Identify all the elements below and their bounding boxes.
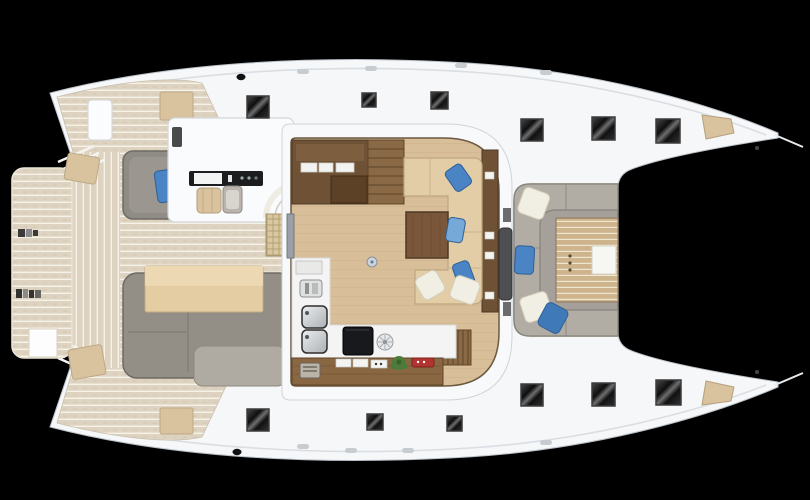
helm-stool-tan [197, 188, 221, 213]
aft-table-leaf [145, 266, 263, 286]
counter-dishes [336, 359, 387, 368]
salon-aft-door [287, 214, 294, 258]
countertop-appliances [301, 163, 354, 172]
galley-module [331, 176, 367, 203]
oven-icon [300, 280, 322, 297]
helm-display [194, 173, 222, 184]
hatch-top-6 [656, 119, 680, 143]
transom-steps-deck [73, 152, 120, 368]
salon [282, 124, 512, 400]
galley-sinks [302, 306, 327, 353]
forward-table-tray [592, 246, 616, 274]
aft-sofa-chaise-pad [194, 346, 286, 386]
hatch-bottom-4 [521, 384, 543, 406]
hatch-bottom-5 [592, 383, 615, 406]
yacht-deck-plan [0, 0, 810, 500]
hatch-top-3 [431, 92, 448, 109]
hatch-top-2 [362, 93, 376, 107]
bow-pulpit-lines [775, 135, 803, 385]
platform-locker-lid [29, 329, 57, 357]
hatch-bottom-3 [447, 416, 462, 431]
stairs-starboard [368, 140, 404, 204]
forward-door [499, 228, 512, 300]
hatch-top-4 [521, 119, 543, 141]
swim-platform [12, 168, 72, 358]
console-speaker-slot [172, 127, 182, 147]
deck-plan-svg [0, 0, 810, 500]
burner-vent [377, 334, 393, 350]
trampoline [620, 173, 776, 347]
helm-console [168, 118, 294, 222]
bow-fitting-top [755, 146, 759, 150]
hatch-bottom-1 [247, 409, 269, 431]
hatch-bottom-6 [656, 380, 681, 405]
galley-small-appliance [296, 261, 322, 274]
quarter-seat-box [88, 100, 112, 140]
hatch-bottom-2 [367, 414, 383, 430]
hatch-top-5 [592, 117, 615, 140]
bow-fitting-bottom [755, 370, 759, 374]
cooktop [343, 327, 373, 355]
hatch-top-1 [247, 96, 269, 118]
